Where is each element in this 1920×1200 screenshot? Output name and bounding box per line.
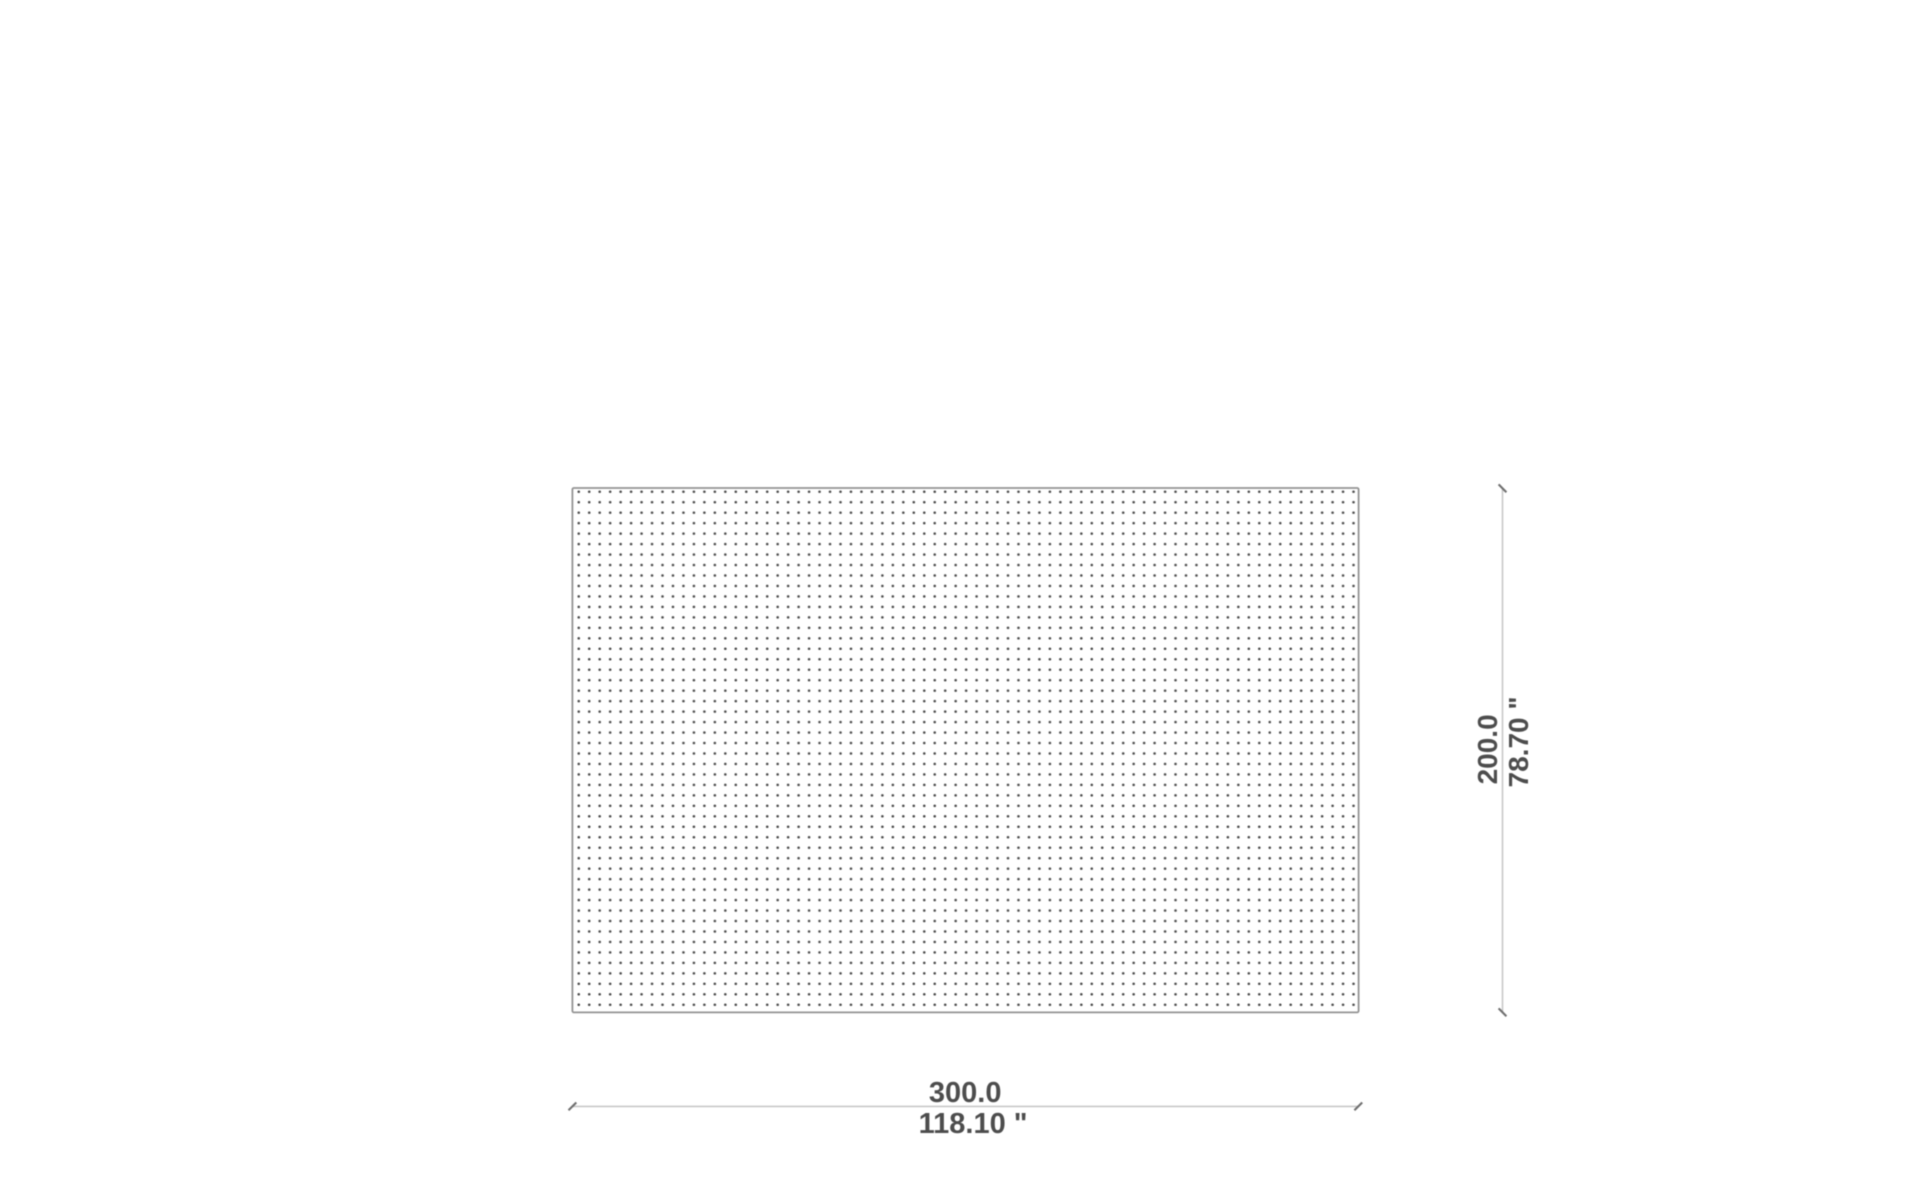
svg-text:200.0: 200.0: [1472, 714, 1503, 784]
svg-text:300.0: 300.0: [929, 1077, 1002, 1109]
svg-text:78.70 ": 78.70 ": [1503, 696, 1534, 787]
svg-text:118.10 ": 118.10 ": [919, 1108, 1028, 1140]
